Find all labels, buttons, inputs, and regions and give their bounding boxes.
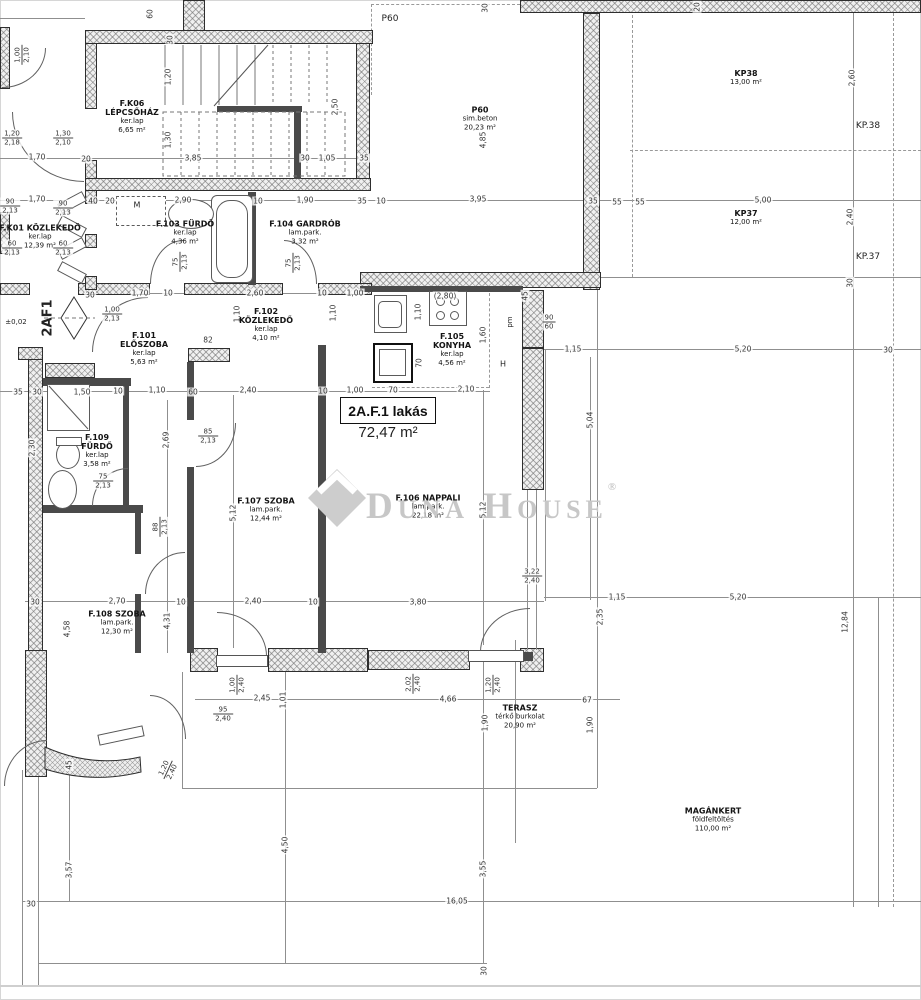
dimension: (2,80)	[433, 292, 458, 301]
dimension: 10	[317, 387, 329, 396]
dimension: 2,90	[174, 196, 193, 205]
dimension: 4,85	[479, 131, 488, 150]
door-size-dimension: 1,002,13	[102, 306, 122, 323]
dimension: 35	[12, 388, 24, 397]
dimension: 4,58	[63, 620, 72, 639]
dimension: 2,40	[244, 597, 263, 606]
dimension: 55	[611, 198, 623, 207]
door-size-dimension: 952,40	[213, 706, 233, 723]
room-label-FK01: F.K01 KÖZLEKEDŐker.lap12,39 m²	[0, 224, 81, 251]
dimension: 20	[693, 1, 702, 13]
dimension: 10	[252, 197, 264, 206]
dimension: 1,70	[28, 195, 47, 204]
door-size-dimension: 2,022,40	[405, 674, 422, 694]
dimension: 2,30	[28, 439, 37, 458]
dimension: 2,40	[846, 208, 855, 227]
room-label-F103: F.103 FÜRDŐker.lap4,36 m²	[156, 220, 214, 247]
dimension: 10	[162, 289, 174, 298]
dimension: 2,35	[596, 608, 605, 627]
door-size-dimension: 852,13	[198, 428, 218, 445]
dimension: 3,57	[65, 861, 74, 880]
room-label-KP37: KP3712,00 m²	[730, 209, 762, 227]
marker-pm: pm	[506, 316, 514, 327]
dimension: 5,20	[734, 345, 753, 354]
dimension: 2,45	[253, 694, 272, 703]
dimension: 10	[112, 387, 124, 396]
dimension: 30	[299, 154, 311, 163]
dimension: 2,40	[239, 386, 258, 395]
dimension: 3,95	[469, 195, 488, 204]
dimension: 1,15	[564, 345, 583, 354]
door-size-dimension: 3,222,40	[522, 568, 542, 585]
dimension: 30	[166, 34, 175, 46]
dimension: 1,00	[346, 289, 365, 298]
dimension: 30	[481, 2, 490, 14]
dimension: 2,10	[457, 385, 476, 394]
dimension: 1,15	[608, 593, 627, 602]
room-label-F102: F.102KÖZLEKEDŐker.lap4,10 m²	[239, 307, 293, 343]
room-label-TERASZ: TERASZtérkő burkolat20,90 m²	[495, 704, 544, 731]
room-label-F105: F.105KONYHAker.lap4,56 m²	[433, 332, 471, 368]
dimension: 20	[80, 155, 92, 164]
room-label-MAGANKERT: MAGÁNKERTföldfeltöltés110,00 m²	[685, 807, 742, 834]
dimension: 4,31	[163, 612, 172, 631]
door-size-dimension: 752,13	[172, 252, 189, 272]
dimension: 5,20	[729, 593, 748, 602]
dimension: 40	[87, 197, 99, 206]
dimension: 12,84	[841, 610, 850, 633]
dimension: 1,00	[346, 386, 365, 395]
dimension: 67	[581, 696, 593, 705]
door-size-dimension: 882,13	[152, 517, 169, 537]
dimension: 3,55	[479, 860, 488, 879]
door-size-dimension: 902,13	[53, 200, 73, 217]
dimension: 16,05	[445, 897, 468, 906]
dimension: 4,50	[281, 836, 290, 855]
marker-m: M	[134, 201, 141, 210]
door-size-dimension: 1,002,40	[229, 675, 246, 695]
room-label-F109: F.109FÜRDŐker.lap3,58 m²	[81, 433, 113, 469]
dimension: 60	[146, 8, 155, 20]
marker-2af1: 2AF1	[41, 299, 56, 336]
dimension: 1,05	[318, 154, 337, 163]
dimension: 5,12	[479, 501, 488, 520]
dimension: 1,60	[479, 326, 488, 345]
dimension: 1,01	[279, 691, 288, 710]
room-label-F101: F.101ELŐSZOBAker.lap5,63 m²	[120, 331, 168, 367]
dimension: 10	[175, 598, 187, 607]
dimension: 10	[375, 197, 387, 206]
marker-h: H	[500, 360, 506, 369]
dimension: 30	[29, 598, 41, 607]
dimension: 45	[521, 290, 530, 302]
door-size-dimension: 752,13	[93, 473, 113, 490]
dimension: 1,30	[164, 131, 173, 150]
dimension: 10	[307, 598, 319, 607]
dimension: 3,85	[184, 154, 203, 163]
dimension: 55	[634, 198, 646, 207]
dimension: 1,90	[481, 714, 490, 733]
dimension: 30	[480, 965, 489, 977]
dimension: 45	[65, 759, 74, 771]
marker-kp38: KP.38	[856, 121, 880, 131]
dimension: 1,10	[414, 303, 423, 322]
dimension: 30	[25, 900, 37, 909]
dimension: 5,00	[754, 196, 773, 205]
dimension: 5,04	[586, 411, 595, 430]
room-label-F108: F.108 SZOBAlam.park.12,30 m²	[88, 610, 145, 637]
dimension: 30	[84, 291, 96, 300]
dimension: 3,80	[409, 598, 428, 607]
room-label-KP38: KP3813,00 m²	[730, 69, 762, 87]
dimension: 2,70	[108, 597, 127, 606]
dimension: 1,10	[148, 386, 167, 395]
dimension: 30	[846, 277, 855, 289]
marker-p60: P60	[382, 14, 399, 24]
door-size-dimension: 1,202,40	[485, 675, 502, 695]
dimension: 35	[358, 154, 370, 163]
room-label-F107: F.107 SZOBAlam.park.12,44 m²	[237, 497, 294, 524]
dimension: 35	[356, 197, 368, 206]
door-size-dimension: 1,202,18	[2, 130, 22, 147]
apartment-label: 2A.F.1 lakás	[348, 403, 427, 419]
door-size-dimension: 9060	[543, 314, 556, 331]
dimension: 10	[316, 289, 328, 298]
curved-wall	[45, 747, 141, 777]
dimension: 20	[104, 197, 116, 206]
dimension: 35	[587, 197, 599, 206]
floor-plan-canvas: 2A.F.1 lakás 72,47 m² Duna House® F.K06L…	[0, 0, 921, 1000]
door-size-dimension: 1,302,10	[53, 130, 73, 147]
dimension: 1,70	[131, 289, 150, 298]
dimension: 1,50	[73, 388, 92, 397]
room-label-P60: P60sim.beton20,23 m²	[463, 106, 498, 133]
dimension: 60	[187, 388, 199, 397]
dimension: 1,90	[296, 196, 315, 205]
room-label-F104: F.104 GARDRÓBlam.park.3,32 m²	[269, 220, 340, 247]
marker-kp37: KP.37	[856, 252, 880, 262]
dimension: 2,60	[848, 69, 857, 88]
dimension: 1,90	[586, 716, 595, 735]
dimension: 30	[31, 388, 43, 397]
dimension: 82	[202, 336, 214, 345]
marker-002: ±0,02	[5, 318, 26, 326]
dimension: 2,60	[246, 289, 265, 298]
dimension: 5,12	[229, 504, 238, 523]
room-label-FK06: F.K06LÉPCSŐHÁZker.lap6,65 m²	[105, 99, 159, 135]
door-size-dimension: 752,13	[285, 253, 302, 273]
dimension: 1,70	[28, 153, 47, 162]
dimension: 30	[882, 346, 894, 355]
door-size-dimension: 902,13	[0, 198, 20, 215]
apartment-label-box: 2A.F.1 lakás	[340, 397, 436, 424]
dimension: 70	[387, 386, 399, 395]
dimension: 70	[415, 357, 424, 369]
room-label-F106: F.106 NAPPALIlam.park.22,18 m²	[396, 494, 461, 521]
door-size-dimension: 1,002,10	[14, 45, 31, 65]
dimension: 1,20	[164, 68, 173, 87]
apartment-area: 72,47 m²	[343, 424, 433, 441]
dimension: 4,66	[439, 695, 458, 704]
dimension: 2,69	[162, 431, 171, 450]
dimension: 1,10	[329, 304, 338, 323]
dimension: 2,50	[331, 98, 340, 117]
